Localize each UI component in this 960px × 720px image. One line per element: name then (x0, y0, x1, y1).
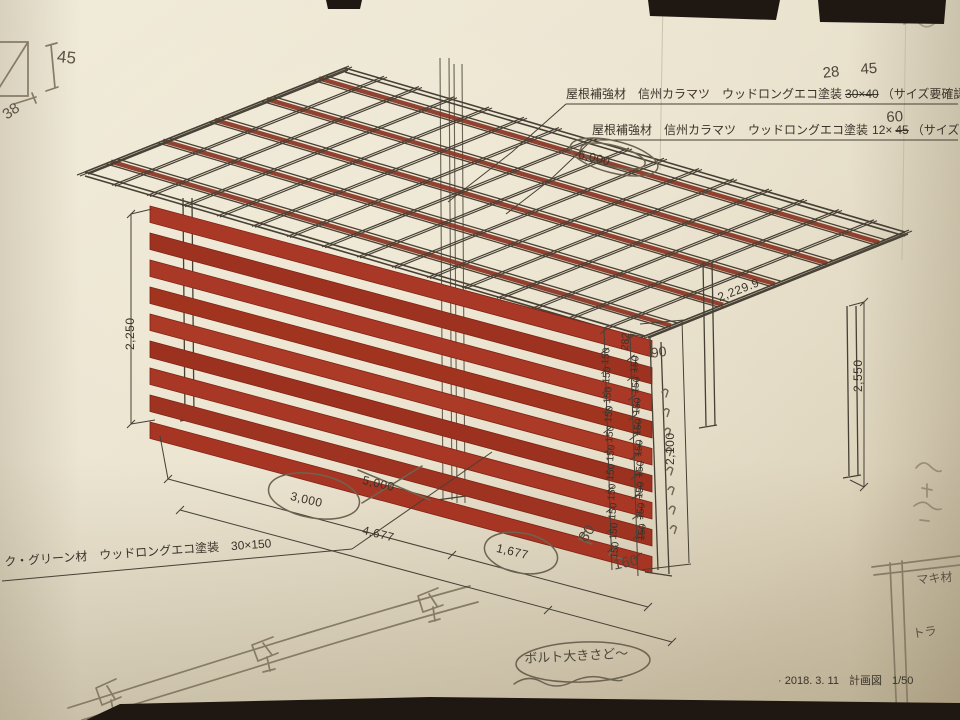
roof-note-2-text: 屋根補強材 信州カラマツ ウッドロングエコ塗装 (592, 123, 868, 137)
chain-dim-150: 150 (637, 523, 649, 541)
dim-wall-height-left: 2,250 (124, 317, 136, 350)
drawing-type: 計画図 (849, 675, 882, 687)
blueprint-drawing (0, 0, 960, 720)
photographed-plan-drawing: 屋根補強材 信州カラマツ ウッドロングエコ塗装30×40（サイズ要確認） 28 … (0, 0, 960, 720)
chain-dim-150: 150 (609, 522, 621, 540)
dim-post-height-right: 2,550 (852, 359, 864, 392)
chain-dim-150: 150 (635, 460, 647, 478)
chain-dim-150: 150 (610, 541, 622, 559)
chain-dim-150: 150 (630, 355, 642, 373)
dim-chain-top-282: 282 (620, 333, 632, 351)
chain-dim-150: 150 (601, 347, 613, 365)
chain-dim-150: 150 (608, 503, 620, 521)
size-correction-60: 60 (886, 109, 903, 125)
roof-note-1-text: 屋根補強材 信州カラマツ ウッドロングエコ塗装 (566, 87, 842, 101)
dim-screen-height: 2,100 (664, 432, 676, 465)
roof-note-1: 屋根補強材 信州カラマツ ウッドロングエコ塗装30×40（サイズ要確認） (566, 88, 960, 100)
chain-dim-150: 150 (606, 444, 618, 462)
roof-note-1-struck-size: 30×40 (845, 87, 879, 101)
chain-dim-150: 150 (607, 483, 619, 501)
roof-note-2: 屋根補強材 信州カラマツ ウッドロングエコ塗装12×45（サイズ要確認） (592, 124, 960, 136)
hw-detail-height-45: 45 (56, 48, 77, 67)
title-block: · 2018. 3. 11計画図1/50 (778, 676, 913, 687)
chain-dim-150: 150 (605, 425, 617, 443)
chain-dim-150: 150 (633, 418, 645, 436)
roof-note-2-note: （サイズ要確認） (912, 123, 960, 137)
drawing-date: · 2018. 3. 11 (778, 675, 839, 687)
chain-dim-150: 150 (632, 397, 644, 415)
hw-corner-note-a: マキ材 (916, 571, 953, 586)
chain-dim-150: 150 (634, 439, 646, 457)
chain-dim-150: 150 (602, 367, 614, 385)
chain-dim-150: 150 (636, 502, 648, 520)
drawing-scale: 1/50 (892, 675, 913, 687)
hw-slat-gap-90: 90 (650, 344, 667, 360)
chain-dim-150: 150 (603, 386, 615, 404)
chain-dim-150: 150 (631, 376, 643, 394)
size-correction-28: 28 (822, 64, 840, 81)
size-correction-45: 45 (860, 61, 878, 77)
chain-dim-150: 150 (604, 406, 616, 424)
roof-note-1-note: （サイズ要確認） (882, 87, 960, 101)
hw-corner-note-b: トラ (912, 625, 937, 640)
